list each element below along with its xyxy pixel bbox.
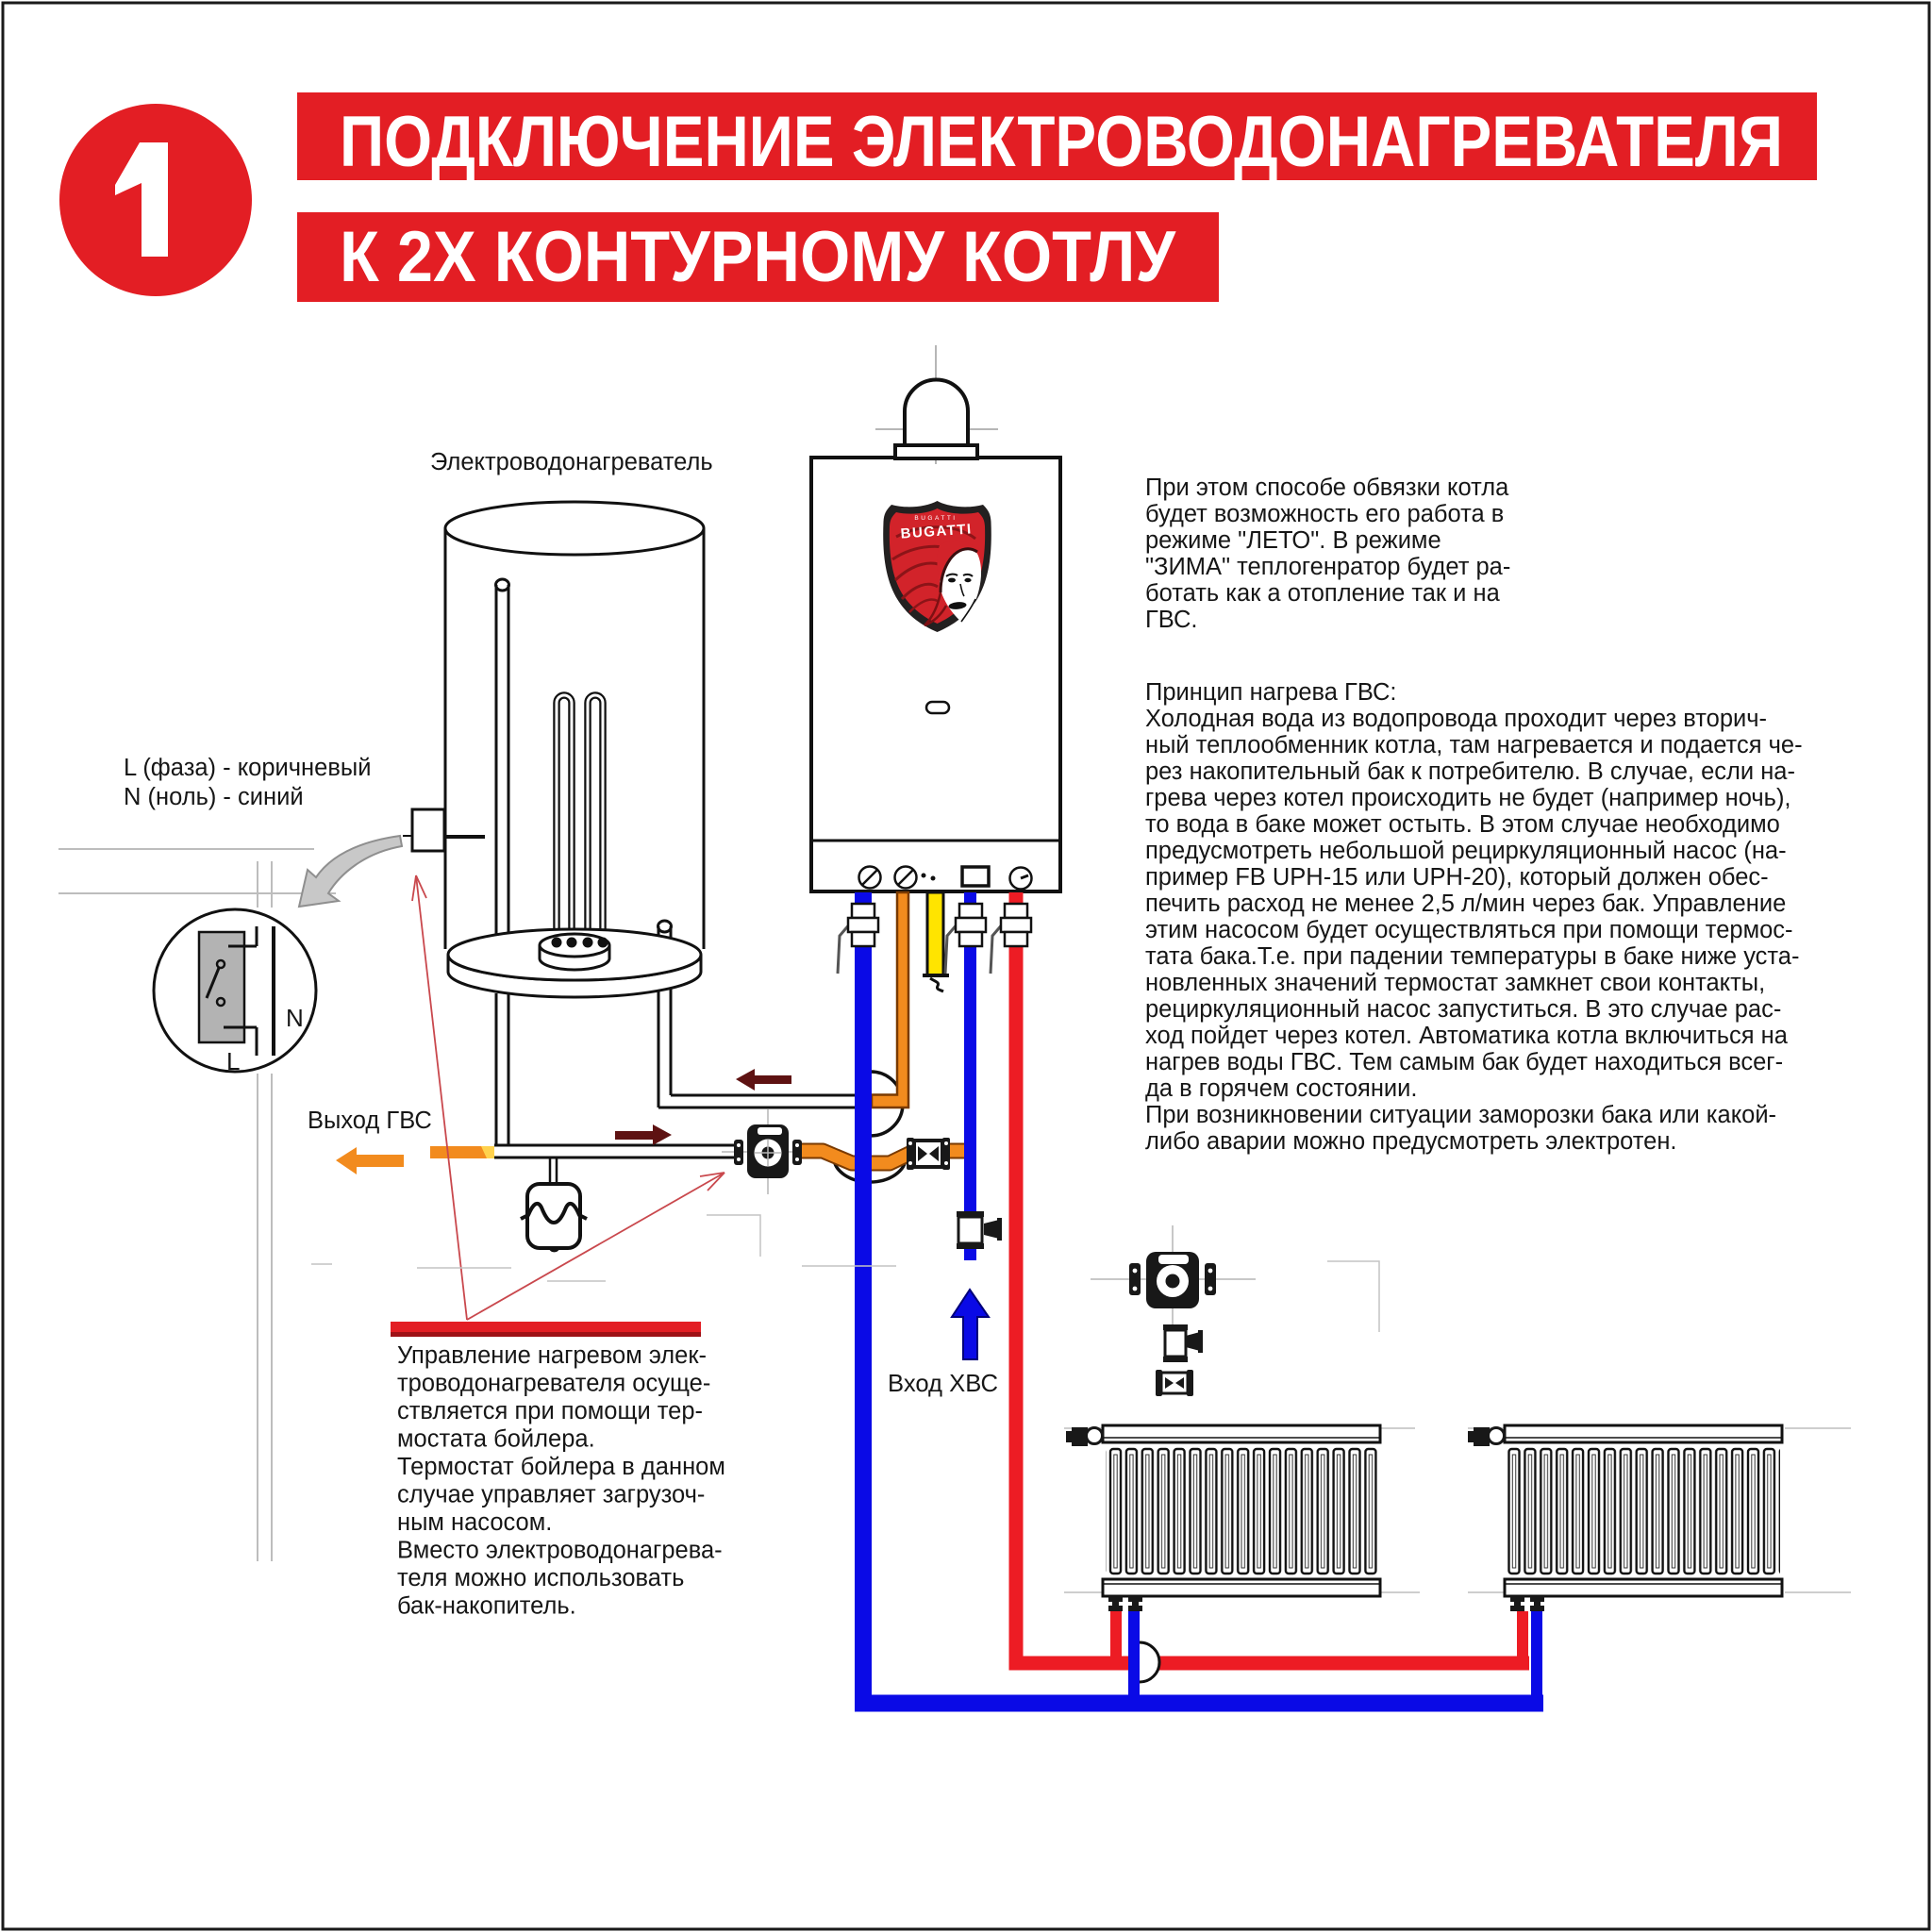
svg-text:будет возможность его работа в: будет возможность его работа в (1145, 501, 1504, 527)
svg-text:либо аварии можно предусмотрет: либо аварии можно предусмотреть электрот… (1145, 1128, 1677, 1155)
svg-text:рециркуляционный насос запусти: рециркуляционный насос запуститься. В эт… (1145, 996, 1781, 1023)
svg-text:пример FB UPH-15 или UPH-20),: пример FB UPH-15 или UPH-20), который до… (1145, 864, 1769, 891)
svg-text:Управление нагревом элек-: Управление нагревом элек- (397, 1342, 707, 1369)
svg-text:При возникновении ситуации зам: При возникновении ситуации заморозки бак… (1145, 1102, 1776, 1128)
svg-text:ный теплообменник котла, там н: ный теплообменник котла, там нагревается… (1145, 732, 1803, 758)
svg-text:да в горячем состоянии.: да в горячем состоянии. (1145, 1075, 1418, 1102)
svg-text:ход пойдет через котел. Автома: ход пойдет через котел. Автоматика котла… (1145, 1023, 1789, 1049)
svg-text:режиме "ЛЕТО". В режиме: режиме "ЛЕТО". В режиме (1145, 527, 1441, 554)
svg-text:К 2Х КОНТУРНОМУ КОТЛУ: К 2Х КОНТУРНОМУ КОТЛУ (340, 217, 1176, 297)
svg-text:ГВС.: ГВС. (1145, 607, 1197, 633)
svg-text:ным насосом.: ным насосом. (397, 1509, 552, 1536)
svg-text:L: L (226, 1047, 240, 1075)
svg-text:троводонагревателя осуще-: троводонагревателя осуще- (397, 1371, 710, 1397)
svg-text:Холодная вода из водопровода п: Холодная вода из водопровода проходит че… (1145, 706, 1767, 732)
svg-text:тата бака.Т.е. при падении тем: тата бака.Т.е. при падении температуры в… (1145, 943, 1799, 970)
svg-text:L (фаза) - коричневый: L (фаза) - коричневый (124, 755, 371, 781)
svg-text:ствляется при помощи тер-: ствляется при помощи тер- (397, 1398, 703, 1424)
svg-text:"ЗИМА" теплогенратор будет ра-: "ЗИМА" теплогенратор будет ра- (1145, 554, 1510, 580)
svg-text:нагрев воды ГВС. Тем самым бак: нагрев воды ГВС. Тем самым бак будет нах… (1145, 1049, 1783, 1075)
svg-text:случае управляет загрузоч-: случае управляет загрузоч- (397, 1482, 705, 1508)
svg-text:Выход ГВС: Выход ГВС (308, 1108, 432, 1134)
svg-text:печить расход не менее 2,5 л/м: печить расход не менее 2,5 л/мин через б… (1145, 891, 1786, 917)
svg-text:новленных значений термостат з: новленных значений термостат замкнет сво… (1145, 970, 1765, 996)
svg-text:Электроводонагреватель: Электроводонагреватель (430, 449, 713, 475)
svg-text:BUGATTI: BUGATTI (914, 515, 957, 522)
svg-text:При этом способе обвязки котла: При этом способе обвязки котла (1145, 475, 1509, 501)
svg-text:Термостат бойлера в данном: Термостат бойлера в данном (397, 1454, 725, 1480)
svg-text:грева через котел происходить: грева через котел происходить не будет (… (1145, 785, 1791, 811)
svg-text:ПОДКЛЮЧЕНИЕ ЭЛЕКТРОВОДОНАГРЕВА: ПОДКЛЮЧЕНИЕ ЭЛЕКТРОВОДОНАГРЕВАТЕЛЯ (340, 102, 1783, 182)
svg-text:Вместо электроводонагрева-: Вместо электроводонагрева- (397, 1538, 723, 1564)
svg-text:теля можно использовать: теля можно использовать (397, 1565, 684, 1591)
svg-text:рез накопительный бак к потреб: рез накопительный бак к потребителю. В с… (1145, 758, 1795, 785)
svg-text:ботать как а отопление так и н: ботать как а отопление так и на (1145, 580, 1501, 607)
svg-text:N: N (286, 1004, 304, 1032)
svg-text:предусмотреть небольшой рецирк: предусмотреть небольшой рециркуляционный… (1145, 838, 1787, 864)
svg-text:то вода в баке может остыть. В: то вода в баке может остыть. В этом случ… (1145, 811, 1780, 838)
svg-text:бак-накопитель.: бак-накопитель. (397, 1593, 576, 1620)
svg-text:Принцип нагрева ГВС:: Принцип нагрева ГВС: (1145, 679, 1397, 706)
svg-text:этим насосом будет осуществлят: этим насосом будет осуществляться при по… (1145, 917, 1793, 943)
svg-text:мостата бойлера.: мостата бойлера. (397, 1426, 595, 1453)
svg-text:Вход ХВС: Вход ХВС (888, 1369, 998, 1397)
svg-text:N (ноль) - синий: N (ноль) - синий (124, 784, 304, 810)
